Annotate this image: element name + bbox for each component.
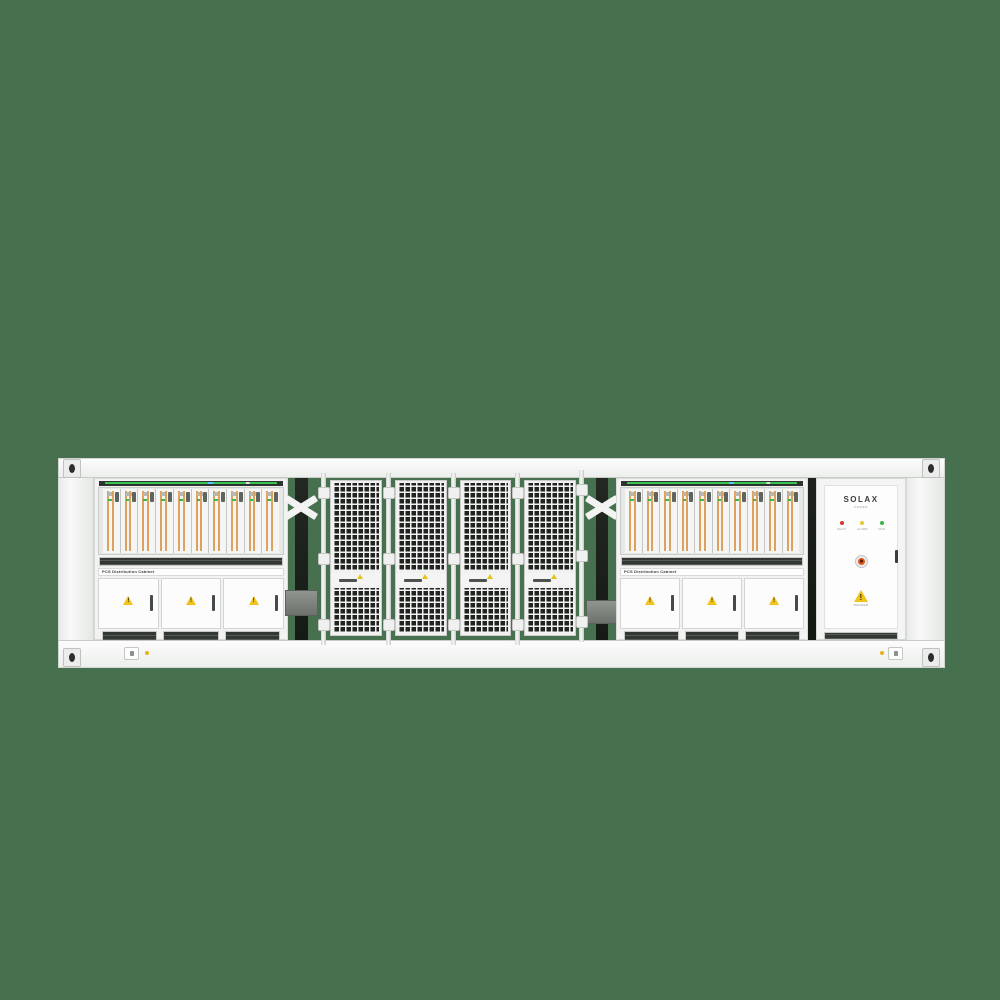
pcs-module: [643, 489, 661, 553]
mesh-panel-upper: [333, 483, 379, 571]
module-handle: [115, 492, 119, 502]
door-lock-rod: [451, 473, 456, 645]
pcs-cabinet-right: PCS Distribution Cabinet: [616, 478, 808, 640]
casting-hole: [928, 464, 934, 473]
door-lock-rod: [321, 473, 326, 645]
emergency-stop-button: [855, 555, 868, 568]
yellow-indicator-dot: [880, 651, 884, 655]
casting-hole: [69, 464, 75, 473]
base-outlet-right: [888, 647, 903, 660]
battery-bay: [316, 478, 590, 640]
rack-vent-grille: [99, 557, 283, 566]
door-lock-rod: [579, 470, 584, 642]
door-lock-rod: [386, 473, 391, 645]
cabinet-door: [682, 578, 742, 629]
hinge: [318, 487, 330, 499]
cabinet-doors: [98, 578, 284, 629]
module-status-led: [232, 499, 237, 501]
brand-logo: SOLAX: [825, 495, 897, 504]
cabinet-label-strip: PCS Distribution Cabinet: [98, 568, 284, 576]
module-label-chip: [683, 492, 689, 496]
cable-tray-block: [586, 600, 620, 624]
warning-sticker-icon: [422, 574, 428, 579]
door-lock-rod: [515, 473, 520, 645]
vent-grille: [102, 631, 157, 641]
pcs-module: [765, 489, 783, 553]
module-handle: [239, 492, 243, 502]
module-status-led: [250, 499, 255, 501]
hinge: [512, 619, 524, 631]
module-status-led: [718, 499, 723, 501]
pcs-module: [625, 489, 643, 553]
pcs-module: [660, 489, 678, 553]
status-led-row: FAULT ALARM RUN: [825, 521, 897, 531]
vent-grille: [745, 631, 800, 641]
cabinet-label: PCS Distribution Cabinet: [99, 570, 154, 574]
corner-casting-bottom-right: [922, 648, 940, 667]
status-led-fault: FAULT: [837, 521, 846, 531]
rack-vent-grille: [621, 557, 803, 566]
module-handle: [672, 492, 676, 502]
casting-hole: [69, 653, 75, 662]
pcs-module: [209, 489, 227, 553]
module-status-led: [179, 499, 184, 501]
module-handle: [221, 492, 225, 502]
container-right-post: [906, 478, 945, 640]
module-label-chip: [753, 492, 759, 496]
mesh-door-handle: [339, 579, 357, 582]
module-status-led: [630, 499, 635, 501]
mesh-panel-lower: [463, 588, 509, 633]
module-status-led: [788, 499, 793, 501]
hinge: [318, 619, 330, 631]
warning-triangle-icon: [249, 596, 259, 605]
casting-hole: [928, 653, 934, 662]
module-handle: [637, 492, 641, 502]
module-handle: [132, 492, 136, 502]
module-status-led: [143, 499, 148, 501]
cabinet-door: [98, 578, 159, 629]
warning-triangle-icon: [645, 596, 655, 605]
mesh-door-handle: [533, 579, 551, 582]
pcs-module: [174, 489, 192, 553]
door-mid-band: [461, 573, 511, 586]
warning-sticker-icon: [357, 574, 363, 579]
pcs-module: [156, 489, 174, 553]
alarm-led-icon: [860, 521, 864, 525]
rack-led-bar: [99, 481, 283, 486]
module-label-chip: [214, 492, 220, 496]
brand-sub-label: POWER: [825, 505, 897, 509]
cabinet-door: [223, 578, 284, 629]
mesh-panel-lower: [333, 588, 379, 633]
battery-mesh-door: [460, 480, 512, 636]
door-handle: [733, 595, 736, 611]
outlet-slot: [894, 651, 898, 656]
bottom-vents: [98, 631, 284, 641]
frame-bay-gap-left: [288, 478, 316, 640]
status-led-run: RUN: [878, 521, 885, 531]
pcs-module: [103, 489, 121, 553]
mesh-panel-upper: [463, 483, 509, 571]
module-handle: [168, 492, 172, 502]
run-led-icon: [880, 521, 884, 525]
module-status-led: [108, 499, 113, 501]
door-mid-band: [331, 573, 381, 586]
container-bottom-rail: [58, 640, 945, 668]
led-strip: [105, 482, 277, 484]
door-mid-band: [396, 573, 446, 586]
module-handle: [203, 492, 207, 502]
module-label-chip: [630, 492, 636, 496]
pcs-module: [138, 489, 156, 553]
rack-led-bar: [621, 481, 803, 486]
warning-triangle-icon: [186, 596, 196, 605]
module-label-chip: [108, 492, 114, 496]
hinge: [383, 553, 395, 565]
vent-grille: [225, 631, 280, 641]
led-label: RUN: [878, 527, 885, 531]
cabinet-door: [620, 578, 680, 629]
pcs-module: [245, 489, 263, 553]
vent-grille: [163, 631, 218, 641]
corner-casting-top-left: [63, 459, 81, 478]
module-label-chip: [770, 492, 776, 496]
module-label-chip: [700, 492, 706, 496]
module-status-led: [665, 499, 670, 501]
warning-triangle-icon: [769, 596, 779, 605]
mesh-door-handle: [404, 579, 422, 582]
hinge: [448, 619, 460, 631]
door-handle: [212, 595, 215, 611]
module-label-chip: [143, 492, 149, 496]
battery-mesh-door: [395, 480, 447, 636]
inverter-module-rack: [620, 487, 804, 555]
cabinet-vent-grille: [824, 632, 898, 640]
solax-cabinet-door: SOLAX POWER FAULT ALARM RUN: [824, 485, 898, 629]
solax-control-cabinet: SOLAX POWER FAULT ALARM RUN: [816, 478, 906, 640]
hinge: [383, 487, 395, 499]
scene-background: PCS Distribution Cabinet: [0, 0, 1000, 1000]
warning-triangle-icon: [123, 596, 133, 605]
fault-led-icon: [840, 521, 844, 525]
module-label-chip: [250, 492, 256, 496]
cabinet-door-handle: [895, 550, 898, 563]
led-label: FAULT: [837, 527, 846, 531]
mesh-panel-upper: [398, 483, 444, 571]
module-status-led: [648, 499, 653, 501]
cabinet-label: PCS Distribution Cabinet: [621, 570, 676, 574]
container-top-rail: [58, 458, 945, 478]
module-handle: [777, 492, 781, 502]
cabinet-doors: [620, 578, 804, 629]
module-status-led: [214, 499, 219, 501]
cable-tray-block: [285, 590, 318, 616]
hinge: [576, 550, 588, 562]
module-handle: [186, 492, 190, 502]
module-handle: [274, 492, 278, 502]
module-handle: [689, 492, 693, 502]
warning-sticker-icon: [551, 574, 557, 579]
hinge: [512, 487, 524, 499]
warning-triangle-icon: [707, 596, 717, 605]
led-strip: [627, 482, 797, 484]
hinge: [576, 484, 588, 496]
door-handle: [795, 595, 798, 611]
door-handle: [150, 595, 153, 611]
pcs-module: [227, 489, 245, 553]
pcs-module: [121, 489, 139, 553]
pcs-module: [678, 489, 696, 553]
hinge: [448, 553, 460, 565]
hinge: [576, 616, 588, 628]
pcs-module: [713, 489, 731, 553]
module-status-led: [126, 499, 131, 501]
module-status-led: [267, 499, 272, 501]
battery-mesh-door: [330, 480, 382, 636]
module-label-chip: [735, 492, 741, 496]
pcs-module: [695, 489, 713, 553]
module-handle: [742, 492, 746, 502]
inverter-module-rack: [98, 487, 284, 555]
button-core: [858, 558, 865, 565]
module-status-led: [753, 499, 758, 501]
yellow-indicator-dot: [145, 651, 149, 655]
mesh-panel-lower: [398, 588, 444, 633]
pcs-module: [192, 489, 210, 553]
pcs-module: [783, 489, 800, 553]
outlet-slot: [130, 651, 134, 656]
cabinet-door: [744, 578, 804, 629]
hinge: [512, 553, 524, 565]
container-left-post: [58, 478, 94, 640]
module-status-led: [161, 499, 166, 501]
module-status-led: [770, 499, 775, 501]
module-label-chip: [126, 492, 132, 496]
vent-grille: [685, 631, 740, 641]
module-handle: [150, 492, 154, 502]
module-handle: [759, 492, 763, 502]
battery-mesh-door: [524, 480, 576, 636]
mesh-door-handle: [469, 579, 487, 582]
module-label-chip: [718, 492, 724, 496]
hinge: [383, 619, 395, 631]
pcs-module: [748, 489, 766, 553]
warning-triangle-icon: [854, 590, 868, 602]
frame-bay-gap-right: [590, 478, 616, 640]
module-status-led: [700, 499, 705, 501]
module-label-chip: [161, 492, 167, 496]
mesh-panel-upper: [527, 483, 573, 571]
module-handle: [654, 492, 658, 502]
door-handle: [671, 595, 674, 611]
module-status-led: [735, 499, 740, 501]
hinge: [448, 487, 460, 499]
module-label-chip: [232, 492, 238, 496]
module-handle: [794, 492, 798, 502]
bess-container: PCS Distribution Cabinet: [58, 458, 945, 668]
warning-sticker-icon: [487, 574, 493, 579]
module-label-chip: [648, 492, 654, 496]
module-label-chip: [788, 492, 794, 496]
module-label-chip: [179, 492, 185, 496]
warning-text: DANGER: [854, 603, 869, 607]
status-led-alarm: ALARM: [857, 521, 867, 531]
base-outlet-left: [124, 647, 139, 660]
module-handle: [724, 492, 728, 502]
module-label-chip: [267, 492, 273, 496]
pcs-module: [730, 489, 748, 553]
corner-casting-bottom-left: [63, 648, 81, 667]
door-handle: [275, 595, 278, 611]
mesh-panel-lower: [527, 588, 573, 633]
cabinet-label-strip: PCS Distribution Cabinet: [620, 568, 804, 576]
bottom-vents: [620, 631, 804, 641]
door-mid-band: [525, 573, 575, 586]
module-handle: [707, 492, 711, 502]
pcs-module: [262, 489, 279, 553]
module-label-chip: [197, 492, 203, 496]
cabinet-seam: [808, 478, 816, 640]
corner-casting-top-right: [922, 459, 940, 478]
led-label: ALARM: [857, 527, 867, 531]
hinge: [318, 553, 330, 565]
warning-label-group: DANGER: [825, 590, 897, 607]
module-label-chip: [665, 492, 671, 496]
module-handle: [256, 492, 260, 502]
pcs-cabinet-left: PCS Distribution Cabinet: [94, 478, 288, 640]
cabinet-door: [161, 578, 222, 629]
module-status-led: [683, 499, 688, 501]
module-status-led: [197, 499, 202, 501]
vent-grille: [624, 631, 679, 641]
